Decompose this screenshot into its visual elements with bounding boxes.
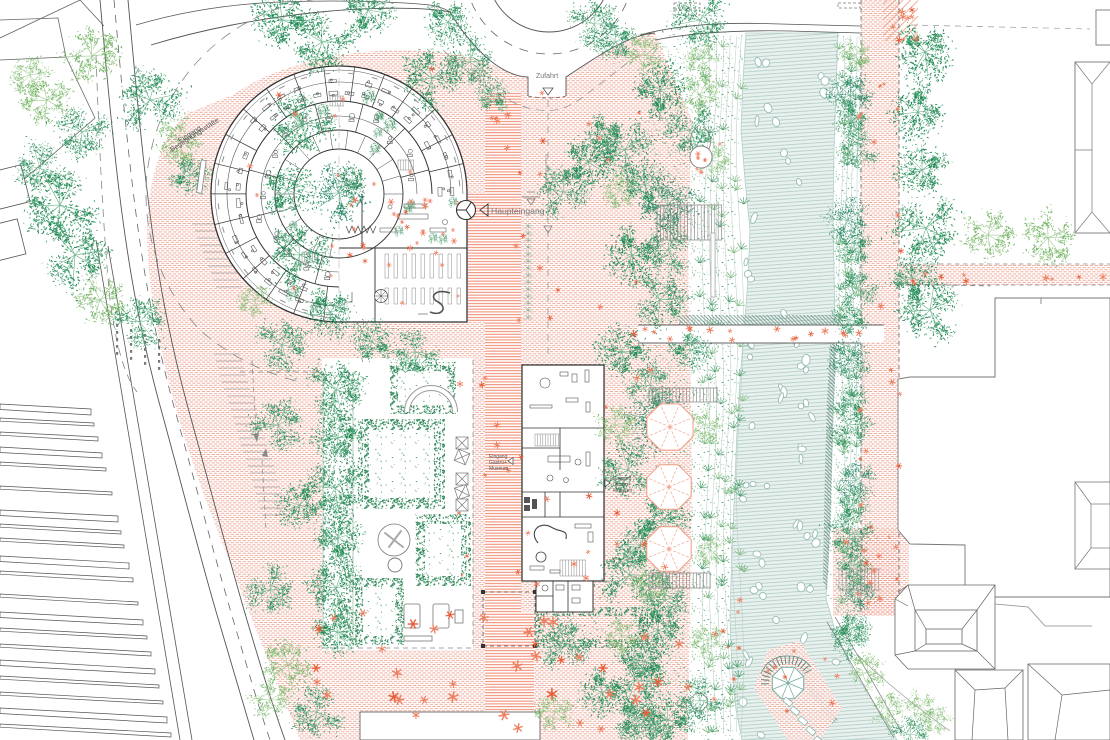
svg-text:Haupteingang: Haupteingang	[491, 206, 545, 216]
svg-text:Museum: Museum	[613, 488, 632, 494]
svg-text:Zufahrt: Zufahrt	[536, 73, 558, 80]
svg-text:Museum: Museum	[489, 466, 508, 472]
